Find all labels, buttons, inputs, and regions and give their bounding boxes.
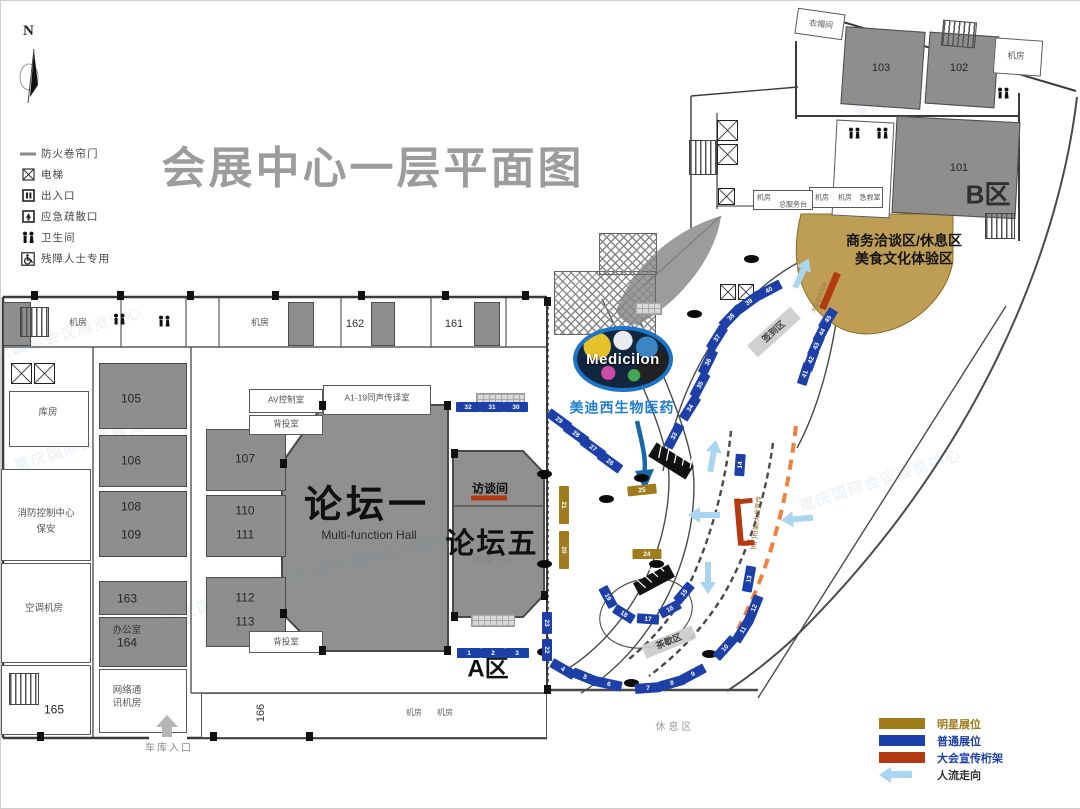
booth-19[interactable]: 19	[598, 585, 617, 609]
rest-area-label: 休息区	[656, 723, 695, 734]
map-label: 105	[121, 393, 141, 406]
table-block	[471, 614, 515, 627]
booth-31[interactable]: 31	[480, 402, 504, 412]
map-label: 背投室	[273, 420, 299, 429]
map-label: 162	[346, 319, 364, 331]
map-label: 113	[235, 616, 254, 629]
wheelchair-icon	[15, 252, 41, 266]
wall-nub	[544, 297, 551, 306]
stairs-icon	[9, 673, 39, 705]
wall-nub	[451, 612, 458, 621]
elevator-icon	[34, 363, 55, 384]
legend-item: 应急疏散口	[15, 206, 110, 227]
column-dot	[634, 474, 649, 482]
legend-swatch	[879, 735, 925, 746]
room	[99, 581, 187, 615]
map-label: 背投室	[273, 638, 299, 647]
elevator-icon	[718, 188, 735, 205]
map-label: 111	[236, 529, 254, 542]
elevator-icon	[720, 284, 736, 300]
map-label: 106	[121, 455, 141, 468]
wall-nub	[319, 401, 326, 410]
map-label: 103	[872, 63, 890, 75]
legend-item-label: 防火卷帘门	[41, 146, 99, 161]
wall-nub	[31, 291, 38, 300]
map-legend: 防火卷帘门 电梯 出入口 应急疏散口 卫生间 残障人士专用	[15, 143, 110, 269]
flow-arrow-icon	[700, 562, 716, 594]
map-label: 166	[256, 704, 268, 722]
legend-item-label: 残障人士专用	[41, 251, 110, 266]
zone-b-label: B区	[966, 175, 1011, 212]
booth-6[interactable]: 6	[595, 676, 623, 691]
legend-item-label: 大会宣传桁架	[937, 750, 1003, 766]
page-title: 会展中心一层平面图	[162, 132, 585, 196]
map-label: 163	[117, 593, 137, 606]
wall-nub	[280, 609, 287, 618]
legend-item-label: 应急疏散口	[41, 209, 99, 224]
room	[99, 435, 187, 487]
booth-45[interactable]: 45	[818, 307, 838, 331]
hatched-void	[599, 233, 657, 275]
entrance-icon	[15, 189, 41, 202]
map-label: 总服务台	[779, 201, 807, 208]
restroom-icon	[875, 127, 890, 140]
room	[9, 391, 89, 447]
map-label: 机房	[69, 318, 87, 327]
column-dot	[537, 560, 552, 568]
booth-13[interactable]: 13	[742, 565, 756, 592]
map-label: A1-19同声传译室	[344, 394, 409, 403]
map-label: 110	[235, 505, 254, 518]
map-label: 急救室	[860, 194, 881, 201]
booth-17[interactable]: 17	[637, 613, 660, 625]
booth-30[interactable]: 30	[504, 402, 528, 412]
room	[371, 302, 395, 346]
map-label: 机房	[1007, 52, 1024, 61]
map-label: 机房	[757, 194, 771, 201]
wall-nub	[442, 291, 449, 300]
garage-arrow-icon	[156, 715, 178, 737]
flow-arrow-icon	[702, 439, 723, 473]
hall-forum1-label: 论坛一	[304, 474, 430, 529]
legend-item: 人流走向	[879, 766, 1003, 783]
restroom-icon	[996, 87, 1011, 100]
booth-20[interactable]: 20	[559, 531, 569, 569]
restroom-icon	[847, 127, 862, 140]
map-label: 107	[235, 453, 255, 466]
elevator-icon	[11, 363, 32, 384]
food-area-label: 美食文化体验区	[855, 252, 953, 267]
legend-item: 大会宣传桁架	[879, 749, 1003, 766]
wall-nub	[522, 291, 529, 300]
wall-nub	[451, 449, 458, 458]
booth-23[interactable]: 23	[542, 612, 552, 634]
booth-3[interactable]: 3	[505, 648, 529, 658]
stairs-icon	[20, 307, 49, 337]
wall-nub	[319, 646, 326, 655]
column-dot	[537, 470, 552, 478]
legend-item-label: 明星展位	[937, 716, 981, 732]
legend-item-label: 普通展位	[937, 733, 981, 749]
booth-7[interactable]: 7	[635, 682, 662, 694]
map-label: 161	[445, 319, 463, 331]
map-label: 消防控制中心	[17, 509, 74, 519]
legend-item-label: 出入口	[41, 188, 76, 203]
hall-forum1-en-label: Multi-function Hall	[321, 528, 416, 542]
legend-swatch	[879, 718, 925, 729]
watermark: 重庆国际会议展览中心	[798, 447, 965, 515]
elevator-icon	[717, 120, 738, 141]
flow-arrow-icon	[879, 769, 925, 780]
flow-arrow-icon	[788, 255, 816, 291]
promo-truss	[734, 498, 744, 545]
map-label: 101	[950, 163, 968, 175]
restroom-icon	[112, 313, 127, 326]
room	[288, 302, 314, 346]
map-label: AV控制室	[268, 396, 304, 405]
legend-item: 普通展位	[879, 732, 1003, 749]
wall-nub	[541, 591, 548, 600]
restroom-icon	[15, 231, 41, 244]
medicilon-company-label: 美迪西生物医药	[570, 401, 675, 416]
map-label: 网络通	[113, 686, 142, 696]
promo-truss	[739, 498, 752, 504]
wall-nub	[117, 291, 124, 300]
booth-40[interactable]: 40	[755, 279, 783, 300]
business-area-label: 商务洽谈区/休息区	[846, 234, 962, 249]
map-label: 109	[121, 529, 141, 542]
floor-plan: N 会展中心一层平面图 防火卷帘门 电梯 出入口 应急疏散口 卫生间	[0, 0, 1080, 809]
column-dot	[744, 255, 759, 263]
interview-room-label: 访谈间	[472, 480, 508, 497]
medicilon-logo: Medicilon	[573, 326, 673, 392]
wall-nub	[358, 291, 365, 300]
medicilon-logo-text: Medicilon	[586, 351, 660, 368]
legend-item: 卫生间	[15, 227, 110, 248]
map-label: 机房	[251, 318, 269, 327]
legend-swatch	[879, 752, 925, 763]
promo-truss	[741, 540, 754, 546]
stairs-icon	[985, 213, 1015, 239]
stairs-icon	[941, 20, 977, 49]
map-label: 165	[44, 704, 64, 717]
wall-nub	[280, 459, 287, 468]
map-label: 讯机房	[113, 699, 142, 709]
elevator-icon	[15, 168, 41, 181]
map-label: 机房	[406, 709, 422, 717]
booth-9[interactable]: 9	[679, 663, 707, 684]
column-dot	[599, 495, 614, 503]
booth-1[interactable]: 1	[457, 648, 481, 658]
booth-35[interactable]: 35	[689, 371, 710, 399]
booth-16[interactable]: 16	[658, 599, 682, 618]
garage-entrance-label: 车库入口	[145, 744, 193, 755]
map-label: 保安	[36, 525, 55, 535]
wall-nub	[37, 732, 44, 741]
wall-nub	[544, 685, 551, 694]
flow-arrow-icon	[688, 507, 720, 523]
legend-item: 电梯	[15, 164, 110, 185]
elevator-icon	[717, 144, 738, 165]
legend-item-label: 人流走向	[937, 767, 981, 783]
booth-2[interactable]: 2	[481, 648, 505, 658]
wall-nub	[272, 291, 279, 300]
map-label: 108	[121, 501, 141, 514]
room	[99, 491, 187, 557]
room	[474, 302, 500, 346]
table-block	[635, 302, 662, 315]
map-label: 112	[235, 592, 254, 605]
wall-nub	[187, 291, 194, 300]
map-label: 机房	[815, 194, 829, 201]
legend-item: 明星展位	[879, 715, 1003, 732]
legend-item-label: 卫生间	[41, 230, 76, 245]
restroom-icon	[157, 315, 172, 328]
booth-25[interactable]: 25	[627, 484, 657, 497]
map-label: 空调机房	[25, 604, 63, 614]
legend-item: 防火卷帘门	[15, 143, 110, 164]
booth-14[interactable]: 14	[734, 454, 746, 477]
map-label: 库房	[38, 408, 57, 418]
booth-24[interactable]: 24	[633, 549, 662, 559]
emergency-exit-icon	[15, 210, 41, 223]
wall-nub	[306, 732, 313, 741]
booth-18[interactable]: 18	[612, 604, 636, 624]
map-label: 机房	[838, 194, 852, 201]
map-label: 164	[117, 637, 137, 650]
map-label: 机房	[437, 709, 453, 717]
booth-29[interactable]: 29	[546, 408, 573, 431]
map-label: 102	[950, 63, 968, 75]
wall-nub	[444, 646, 451, 655]
legend-item: 出入口	[15, 185, 110, 206]
legend-item: 残障人士专用	[15, 248, 110, 269]
flow-arrow-icon	[780, 510, 813, 529]
column-dot	[649, 560, 664, 568]
stairs-icon	[689, 140, 718, 175]
room	[99, 363, 187, 429]
hall-forum5-sub-label: 新闻中心	[472, 551, 512, 566]
column-dot	[687, 310, 702, 318]
booth-21[interactable]: 21	[559, 486, 569, 524]
booth-legend: 明星展位 普通展位 大会宣传桁架 人流走向	[879, 715, 1003, 783]
promo-truss	[471, 496, 507, 501]
booth-33[interactable]: 33	[663, 422, 684, 450]
wall-nub	[210, 732, 217, 741]
fire-shutter-icon	[15, 150, 41, 158]
map-label: 办公室	[113, 626, 142, 636]
room	[201, 693, 547, 738]
booth-36[interactable]: 36	[698, 348, 718, 376]
wall-nub	[444, 401, 451, 410]
legend-item-label: 电梯	[41, 167, 64, 182]
booth-32[interactable]: 32	[456, 402, 480, 412]
booth-12[interactable]: 12	[744, 594, 763, 622]
booth-22[interactable]: 22	[542, 639, 552, 661]
